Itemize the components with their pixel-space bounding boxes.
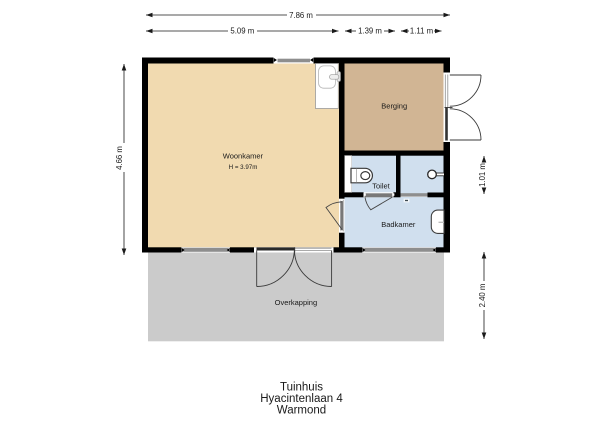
svg-text:Tuinhuis: Tuinhuis <box>280 382 323 394</box>
svg-text:H = 3.97m: H = 3.97m <box>229 164 258 171</box>
svg-text:Woonkamer: Woonkamer <box>223 151 264 160</box>
svg-text:7.86 m: 7.86 m <box>289 11 313 20</box>
svg-text:2.40 m: 2.40 m <box>478 284 487 308</box>
svg-text:Toilet: Toilet <box>372 182 390 191</box>
svg-text:Overkapping: Overkapping <box>275 298 318 307</box>
svg-text:1.11 m: 1.11 m <box>410 27 433 36</box>
svg-text:1.01 m: 1.01 m <box>478 163 487 187</box>
svg-text:5.09 m: 5.09 m <box>230 27 254 36</box>
svg-text:1.39 m: 1.39 m <box>358 27 382 36</box>
svg-text:Berging: Berging <box>381 101 407 110</box>
svg-text:4.66 m: 4.66 m <box>115 146 124 170</box>
svg-text:Warmond: Warmond <box>277 405 326 417</box>
svg-text:Badkamer: Badkamer <box>381 220 416 229</box>
svg-text:Hyacintenlaan 4: Hyacintenlaan 4 <box>260 393 343 405</box>
